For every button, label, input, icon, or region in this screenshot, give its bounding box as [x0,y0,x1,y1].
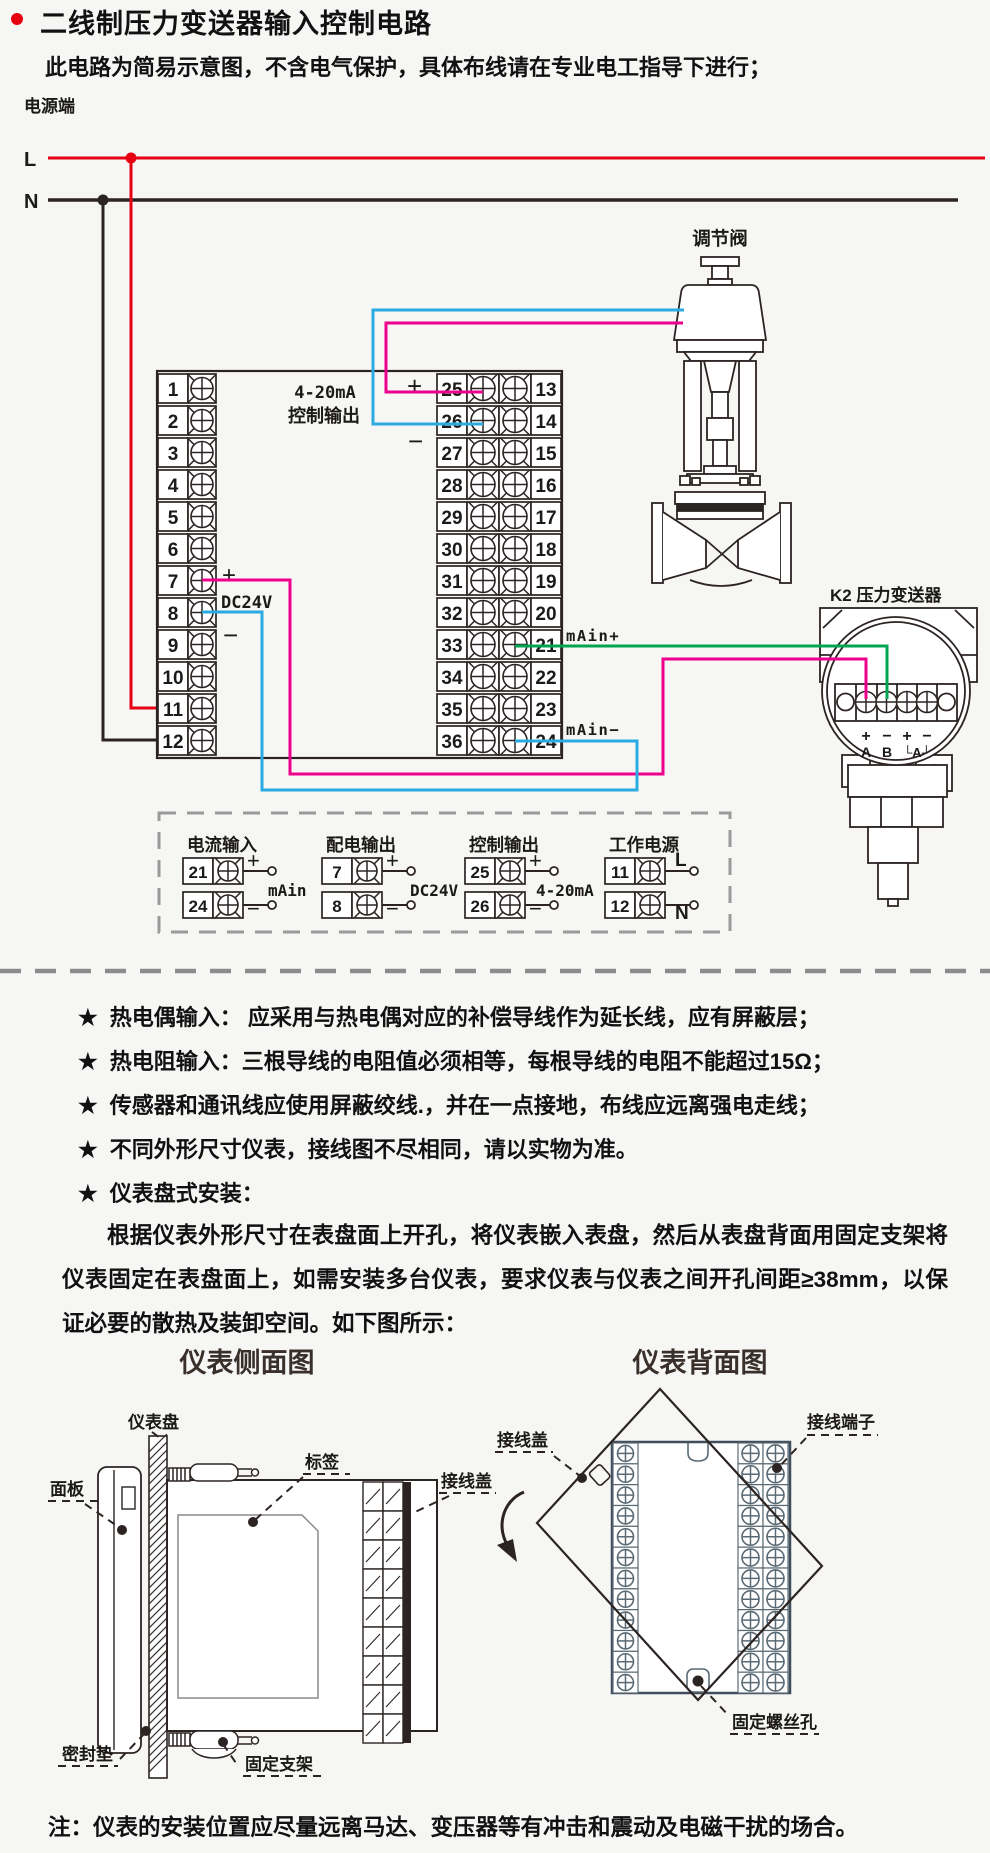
note-text: 不同外形尺寸仪表，接线图不尽相同，请以实物为准。 [110,1137,638,1162]
side-tag-label: 标签 [305,1452,340,1472]
note-line: ★不同外形尺寸仪表，接线图不尽相同，请以实物为准。 [78,1132,638,1164]
install-paragraph: 根据仪表外形尺寸在表盘面上开孔，将仪表嵌入表盘，然后从表盘背面用固定支架将仪表固… [62,1214,948,1346]
side-panel-label: 仪表盘 [127,1412,179,1432]
wire-end-circle-icon [268,867,276,875]
back-terminal-label: 接线端子 [807,1412,875,1432]
legend-group: 配电输出7+8−DC24V [322,835,459,921]
note-text: 热电阻输入：三根导线的电阻值必须相等，每根导线的电阻不能超过15Ω； [110,1049,834,1074]
terminal-number: 7 [168,572,179,593]
legend-terminal-number: 8 [332,897,341,916]
terminal-number: 10 [162,668,183,689]
terminal-number: 34 [441,668,463,689]
legend-terminal-number: 25 [471,863,490,882]
side-gasket-label: 密封垫 [62,1744,113,1764]
power-terminal-label: 电源端 [24,96,75,116]
side-view-diagram: 仪表侧面图 [48,1348,496,1778]
legend-terminal-number: 21 [189,863,208,882]
transmitter-pin-name: A [861,744,871,760]
legend-sign: − [247,896,260,921]
terminal-number: 6 [168,540,179,561]
terminal-number: 23 [535,700,556,721]
legend-terminal-number: 26 [471,897,490,916]
control-output-value: 4-20mA [294,383,355,403]
page: 二线制压力变送器输入控制电路 此电路为简易示意图，不含电气保护，具体布线请在专业… [0,0,990,1853]
footnote: 注：仪表的安装位置应尽量远离马达、变压器等有冲击和震动及电磁干扰的场合。 [48,1810,858,1842]
wire-end-circle-icon [407,867,415,875]
terminal-number: 9 [168,636,179,657]
ctrl-minus-sign: − [408,426,423,456]
star-icon: ★ [78,1049,98,1074]
star-icon: ★ [78,1181,98,1206]
legend-terminal-number: 11 [611,863,629,882]
terminal-number: 15 [535,444,557,465]
star-icon: ★ [78,1005,98,1030]
wire-end-circle-icon [690,901,698,909]
side-view-title: 仪表侧面图 [179,1348,315,1379]
terminal-number: 13 [535,380,556,401]
legend-group: 控制输出25+26−4-20mA [465,835,594,921]
terminal-number: 36 [441,732,462,753]
legend-group: 工作电源11L12N [605,835,698,924]
note-line: ★仪表盘式安装： [78,1176,264,1208]
pressure-transmitter-drawing: K2 压力变送器 +−+−AB└A┘ [820,585,977,906]
terminal-number: 22 [535,668,556,689]
legend-group: 电流输入21+24−mAin [183,835,307,921]
note-line: ★热电偶输入： 应采用与热电偶对应的补偿导线作为延长线，应有屏蔽层； [78,1000,820,1032]
transmitter-pin-sign: − [922,728,931,745]
wire-end-circle-icon [550,901,558,909]
terminal-number: 16 [535,476,556,497]
legend-sign: N [675,903,689,924]
legend-terminal-number: 24 [189,897,208,916]
transmitter-pin-name: └A┘ [903,745,931,760]
dc24v-minus-sign: − [223,620,238,650]
wire-end-circle-icon [690,867,698,875]
control-output-label: 控制输出 [288,405,360,426]
wire-end-circle-icon [407,901,415,909]
wire-end-circle-icon [268,901,276,909]
wire-end-circle-icon [550,867,558,875]
live-label: L [24,149,36,171]
dc24v-plus-sign: + [222,562,236,589]
transmitter-pin-sign: + [861,728,870,745]
star-icon: ★ [78,1137,98,1162]
terminal-number: 19 [535,572,556,593]
terminal-number: 3 [168,444,179,465]
back-screw-hole-label: 固定螺丝孔 [732,1712,817,1732]
transmitter-pin-sign: − [882,728,891,745]
main-plus-label: mAin+ [566,627,620,645]
legend-sign: + [529,848,542,873]
ctrl-plus-sign: + [407,371,422,401]
terminal-number: 4 [168,476,179,497]
valve-label: 调节阀 [692,228,748,249]
note-line: ★热电阻输入：三根导线的电阻值必须相等，每根导线的电阻不能超过15Ω； [78,1044,834,1076]
transmitter-pin-sign: + [902,728,911,745]
terminal-number: 8 [168,604,179,625]
side-terminal-cover-label: 接线盖 [441,1471,492,1491]
terminal-number: 31 [441,572,463,593]
transmitter-label: K2 压力变送器 [830,585,942,605]
legend-group-title: 工作电源 [609,835,679,855]
note-text: 仪表盘式安装： [110,1181,264,1206]
wiring-diagram-svg: 电源端 L N 123456789101112 2513261427152816… [0,0,990,1853]
terminal-number: 17 [535,508,556,529]
side-front-panel-label: 面板 [50,1479,85,1499]
legend-sign: + [247,848,260,873]
back-view-diagram: 仪表背面图 接线盖 接线端子 固定螺丝孔 [495,1348,878,1734]
legend-caption: mAin [268,881,307,900]
note-line: ★传感器和通讯线应使用屏蔽绞线.，并在一点接地，布线应远离强电走线； [78,1088,820,1120]
back-terminal-cover-label: 接线盖 [497,1430,548,1450]
terminal-number: 33 [441,636,462,657]
terminal-number: 11 [163,700,184,721]
main-minus-label: mAin− [566,721,620,739]
transmitter-pin-name: B [882,744,892,760]
terminal-number: 28 [441,476,462,497]
legend-sign: L [675,850,687,871]
side-cover-bar [403,1482,411,1743]
neutral-label: N [24,191,38,213]
control-valve-drawing: 调节阀 [652,228,791,586]
instrument-terminal-block: 123456789101112 251326142715281629173018… [157,371,620,758]
terminal-number: 20 [535,604,556,625]
terminal-number: 1 [168,380,179,401]
terminal-number: 30 [441,540,462,561]
back-view-title: 仪表背面图 [632,1348,768,1379]
legend-caption: 4-20mA [536,881,594,900]
terminal-legend: 电流输入21+24−mAin配电输出7+8−DC24V控制输出25+26−4-2… [159,813,730,932]
terminal-number: 29 [441,508,462,529]
note-text: 热电偶输入： 应采用与热电偶对应的补偿导线作为延长线，应有屏蔽层； [110,1005,820,1030]
dc24v-label: DC24V [221,593,272,613]
legend-terminal-number: 12 [611,897,630,916]
terminal-number: 12 [162,732,183,753]
legend-sign: + [386,848,399,873]
star-icon: ★ [78,1093,98,1118]
legend-terminal-number: 7 [332,863,341,882]
legend-caption: DC24V [410,881,459,900]
terminal-number: 14 [535,412,557,433]
side-bracket-label: 固定支架 [245,1754,313,1774]
terminal-number: 35 [441,700,463,721]
terminal-number: 2 [168,412,179,433]
note-text: 传感器和通讯线应使用屏蔽绞线.，并在一点接地，布线应远离强电走线； [110,1093,820,1118]
legend-sign: − [386,896,399,921]
terminal-number: 32 [441,604,462,625]
terminal-number: 27 [441,444,462,465]
terminal-number: 18 [535,540,556,561]
terminal-number: 5 [168,508,179,529]
